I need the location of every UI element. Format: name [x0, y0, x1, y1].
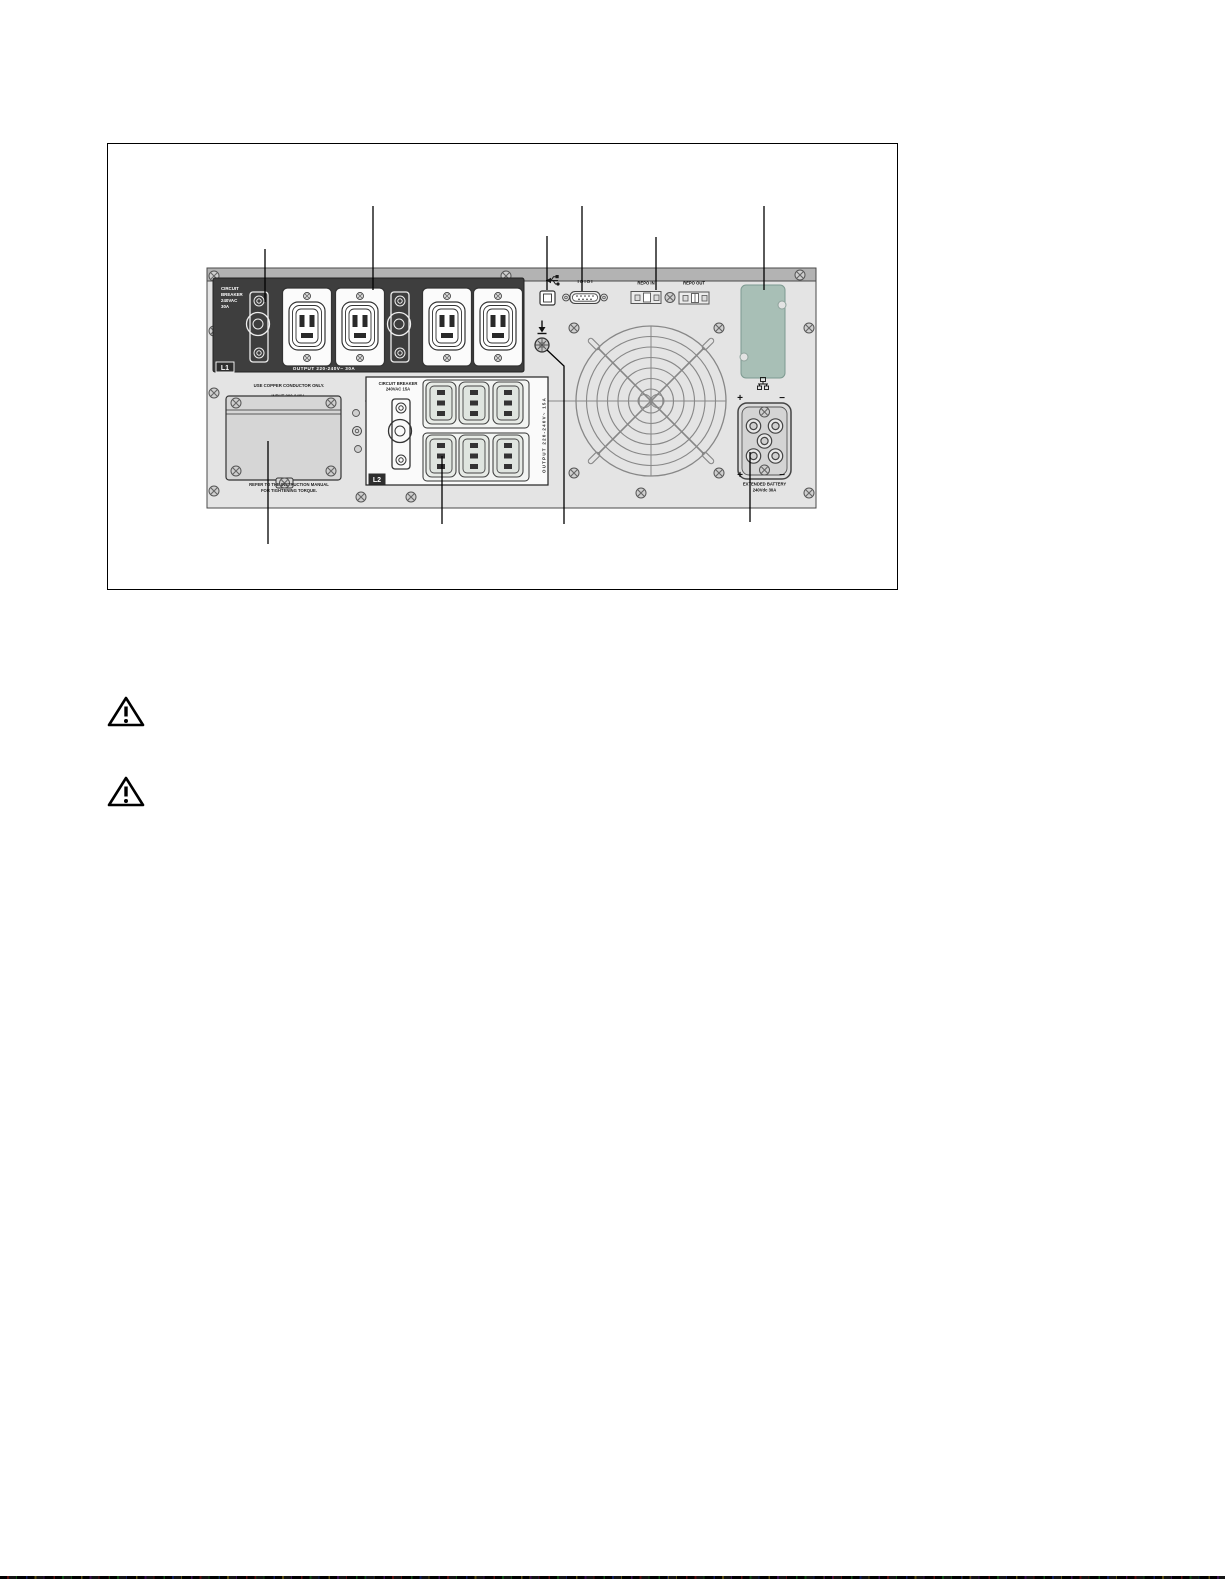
l1-breaker-label-line1: CIRCUIT	[221, 286, 239, 291]
repo-in-connector	[631, 292, 661, 304]
c13-outlet-6	[493, 435, 523, 477]
warning-triangle-icon	[107, 695, 145, 728]
comm-card-slot	[741, 285, 785, 378]
l1-output-label: OUTPUT 220-240V~ 30A	[293, 366, 356, 371]
input-note-line2: FOR TIGHTENING TORQUE.	[261, 488, 317, 493]
panel-screw-small	[353, 410, 360, 417]
c19-outlet-1	[283, 288, 332, 366]
c19-outlet-3	[423, 288, 472, 366]
card-slot-section	[740, 285, 786, 390]
battery-screw-bottom	[760, 465, 770, 475]
input-section: USE COPPER CONDUCTOR ONLY. INPUT 200-240…	[226, 383, 362, 493]
battery-screw-top	[760, 407, 770, 417]
comm-screw	[665, 293, 675, 303]
repo-out-label: REPO OUT	[683, 281, 705, 286]
input-note-line1: REFER TO THE INSTRUCTION MANUAL	[249, 482, 329, 487]
repo-out-connector	[679, 292, 709, 304]
l2-breaker-label-line1: CIRCUIT BREAKER	[379, 381, 418, 386]
panel-screw-small	[355, 446, 362, 453]
card-slot-screw-hole-bottom	[740, 353, 748, 361]
repo-in-label: REPO IN	[637, 281, 654, 286]
input-terminal-cover	[226, 396, 341, 488]
battery-label-line2: 240Vdc 30A	[753, 488, 777, 493]
l1-badge-label: L1	[221, 365, 229, 372]
c13-outlet-3	[493, 382, 523, 424]
card-slot-screw-hole-top	[778, 301, 786, 309]
battery-connector-section: + − + − EXTENDED BATTERY 240Vdc 30A	[737, 393, 791, 493]
battery-plus-bottom: +	[737, 470, 743, 481]
battery-plus-top: +	[737, 393, 743, 404]
figure-frame: CIRCUIT BREAKER 240VAC 30A L1 OUTPUT 220…	[107, 143, 898, 590]
l1-outlet-section: CIRCUIT BREAKER 240VAC 30A L1 OUTPUT 220…	[213, 278, 524, 372]
l1-breaker-label-line2: BREAKER	[221, 292, 244, 297]
battery-minus-bottom: −	[779, 470, 785, 481]
serial-port-label: IOIOI	[578, 279, 594, 284]
c19-outlet-4	[474, 288, 523, 366]
usb-port	[540, 291, 555, 305]
l2-badge-label: L2	[373, 477, 381, 484]
c13-outlet-5	[459, 435, 489, 477]
warning-triangle-icon	[107, 775, 145, 808]
l1-breaker-label-line3: 240VAC	[221, 298, 238, 303]
l2-outlet-section: CIRCUIT BREAKER 240VAC 15A OUTPUT 220-24…	[366, 377, 548, 485]
l2-breaker-label-line2: 240VAC 15A	[386, 387, 410, 392]
input-warning-label: USE COPPER CONDUCTOR ONLY.	[254, 383, 325, 388]
ups-rear-panel-diagram: CIRCUIT BREAKER 240VAC 30A L1 OUTPUT 220…	[108, 144, 897, 589]
c13-outlet-1	[426, 382, 456, 424]
l1-breaker-label-line4: 30A	[221, 304, 230, 309]
panel-hole	[353, 427, 362, 436]
c13-outlet-2	[459, 382, 489, 424]
scan-artifact-line	[0, 1576, 1225, 1579]
c13-outlet-4	[426, 435, 456, 477]
l2-output-label: OUTPUT 220-240V~ 15A	[542, 397, 547, 473]
c19-outlet-2	[336, 288, 385, 366]
